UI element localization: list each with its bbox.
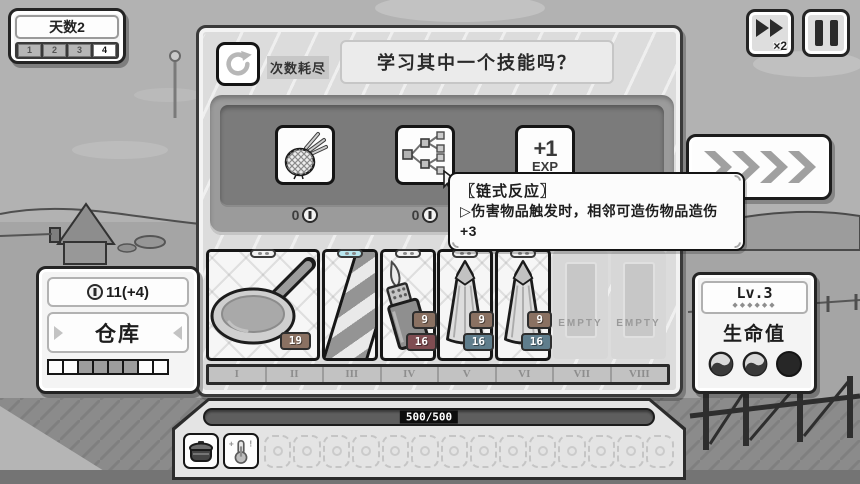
next-arrow-icon[interactable] — [173, 326, 182, 340]
day-counter: 天数2 — [15, 15, 119, 39]
svg-text:!: ! — [249, 438, 252, 448]
card-trigger-pill-cyan — [337, 249, 363, 258]
item-cards-row: 19 — [206, 249, 670, 362]
enemy-hp-value: 500/500 — [400, 411, 458, 424]
life-orb-icon — [708, 351, 734, 377]
day-tabs: 1 2 3 4 — [15, 42, 119, 59]
card-slot-empty-8[interactable]: EMPTY — [611, 251, 666, 359]
coin-count: 11(+4) — [106, 284, 149, 301]
life-orb-icon — [742, 351, 768, 377]
slot-label-8: VIII — [610, 367, 668, 382]
striped-pole-icon — [325, 252, 375, 358]
skill-option-onion[interactable] — [275, 125, 335, 185]
card-trigger-pill — [395, 249, 421, 258]
slot-label-7: VII — [552, 367, 610, 382]
coin-counter: 11(+4) — [47, 277, 189, 307]
slot-label-3: III — [322, 367, 380, 382]
cooking-slot-row: + ! — [183, 433, 675, 469]
empty-slot-label: EMPTY — [553, 318, 608, 329]
warehouse-panel: 11(+4) 仓库 — [36, 266, 200, 394]
skill-price-2-value: 0 — [412, 207, 420, 223]
temperature-button[interactable]: + ! — [223, 433, 259, 469]
slot-label-2: II — [265, 367, 323, 382]
day-tab-1[interactable]: 1 — [18, 44, 41, 57]
fast-forward-button[interactable]: ×2 — [746, 9, 794, 57]
trigger-badge: 9 — [527, 311, 552, 329]
cooking-bar: 500/500 + ! — [172, 398, 686, 480]
slot-label-6: VI — [495, 367, 553, 382]
card-slot-empty-7[interactable]: EMPTY — [553, 251, 608, 359]
card-trigger-pill — [250, 249, 276, 258]
prev-arrow-icon[interactable] — [54, 326, 63, 340]
slot-label-1: I — [209, 367, 265, 382]
reroll-button[interactable] — [216, 42, 260, 86]
day-tab-2[interactable]: 2 — [43, 44, 66, 57]
warehouse-label: 仓库 — [95, 318, 141, 348]
skill-tooltip: 〖链式反应〗 ▷伤害物品触发时，相邻可造伤物品造伤+3 — [448, 172, 745, 251]
card-salt-bag-2[interactable]: 9 16 — [495, 249, 551, 361]
capacity-segment — [152, 359, 169, 375]
tooltip-title: 〖链式反应〗 — [460, 180, 733, 201]
day-counter-label: 天数2 — [49, 19, 85, 35]
coin-icon — [422, 207, 438, 223]
inventory-slot-empty — [382, 435, 409, 468]
card-lighter[interactable]: 9 16 — [380, 249, 436, 361]
inventory-slot-empty — [529, 435, 556, 468]
level-pips: ◆◆◆◆◆◆ — [703, 302, 806, 310]
warehouse-capacity-bar — [47, 359, 189, 375]
inventory-slot-empty — [588, 435, 615, 468]
refresh-icon — [223, 49, 253, 79]
skill-price-1: 0 — [275, 207, 335, 223]
day-tab-3[interactable]: 3 — [68, 44, 91, 57]
card-salt-bag-1[interactable]: 9 16 — [437, 249, 493, 361]
card-striped-pole[interactable] — [322, 249, 378, 361]
inventory-slot-empty — [352, 435, 379, 468]
damage-badge: 16 — [521, 333, 552, 351]
inventory-slot-empty — [411, 435, 438, 468]
enemy-hp-bar: 500/500 — [203, 408, 655, 426]
inventory-slot-empty — [617, 435, 644, 468]
life-orbs — [701, 351, 808, 377]
slot-label-4: IV — [380, 367, 438, 382]
slot-numerals-strip: I II III IV V VI VII VIII — [206, 364, 670, 385]
warehouse-button[interactable]: 仓库 — [47, 312, 189, 353]
day-tab-4[interactable]: 4 — [93, 44, 116, 57]
coin-icon — [87, 284, 103, 300]
thermometer-icon: + ! — [228, 438, 254, 464]
pause-button[interactable] — [802, 9, 850, 57]
card-frying-pan[interactable]: 19 — [206, 249, 320, 361]
reroll-status-label: 次数耗尽 — [267, 56, 329, 79]
level-box: Lv.3 ◆◆◆◆◆◆ — [701, 281, 808, 314]
life-orb-lost-icon — [776, 351, 802, 377]
player-status-panel: Lv.3 ◆◆◆◆◆◆ 生命值 — [692, 272, 817, 394]
hp-title: 生命值 — [701, 319, 808, 346]
trigger-badge: 9 — [412, 311, 437, 329]
fast-forward-icon — [756, 19, 786, 41]
exp-skill-icon: +1 EXP — [532, 138, 558, 173]
level-label: Lv.3 — [703, 284, 806, 302]
onion-skill-icon — [280, 130, 330, 180]
exp-text: EXP — [532, 160, 558, 173]
pause-icon — [805, 12, 847, 54]
inventory-slot-empty — [499, 435, 526, 468]
skill-price-1-value: 0 — [292, 207, 300, 223]
empty-slot-label: EMPTY — [611, 318, 666, 329]
trigger-badge: 9 — [469, 311, 494, 329]
cooking-bar-inner: 500/500 + ! — [175, 401, 683, 477]
game-screen: 天数2 1 2 3 4 ×2 次数耗尽 学习其中一个技能吗？ — [0, 0, 860, 484]
pot-icon — [188, 438, 214, 464]
inventory-slot-empty — [323, 435, 350, 468]
slot-label-5: V — [437, 367, 495, 382]
damage-badge: 16 — [463, 333, 494, 351]
dialog-question: 学习其中一个技能吗？ — [340, 40, 614, 84]
coin-icon — [302, 207, 318, 223]
damage-badge: 16 — [406, 333, 437, 351]
day-panel: 天数2 1 2 3 4 — [8, 8, 126, 64]
dialog-question-text: 学习其中一个技能吗？ — [377, 49, 577, 75]
svg-text:+: + — [229, 438, 234, 448]
exp-plus-one: +1 — [532, 138, 558, 160]
speed-label: ×2 — [773, 39, 787, 53]
pot-button[interactable] — [183, 433, 219, 469]
inventory-slot-empty — [264, 435, 291, 468]
inventory-slot-empty — [558, 435, 585, 468]
damage-badge: 19 — [280, 332, 311, 350]
skill-option-chain-reaction[interactable] — [395, 125, 455, 185]
inventory-slot-empty — [470, 435, 497, 468]
skill-price-2: 0 — [395, 207, 455, 223]
inventory-slot-empty — [646, 435, 673, 468]
inventory-slot-empty — [441, 435, 468, 468]
tooltip-body: ▷伤害物品触发时，相邻可造伤物品造伤+3 — [460, 201, 733, 242]
inventory-slot-empty — [293, 435, 320, 468]
